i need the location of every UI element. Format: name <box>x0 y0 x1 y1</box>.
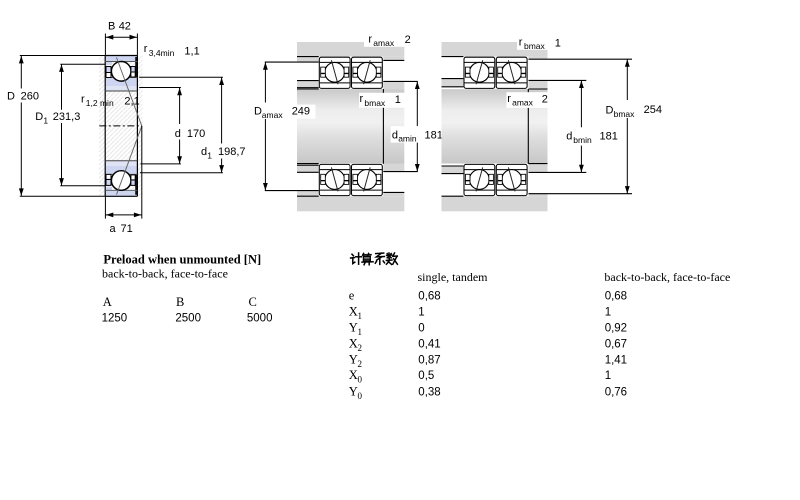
svg-text:r: r <box>360 93 364 105</box>
svg-text:71: 71 <box>121 223 133 235</box>
svg-text:0,76: 0,76 <box>605 386 627 398</box>
svg-text:d: d <box>201 146 207 158</box>
svg-text:1: 1 <box>418 307 424 319</box>
svg-text:C: C <box>249 295 257 309</box>
svg-text:0,68: 0,68 <box>418 291 440 303</box>
svg-text:B: B <box>108 21 115 33</box>
svg-text:e: e <box>349 289 355 303</box>
svg-text:bmin: bmin <box>573 135 592 145</box>
svg-text:254: 254 <box>644 104 662 116</box>
svg-text:1: 1 <box>207 150 212 160</box>
svg-text:D: D <box>606 105 614 117</box>
svg-text:bmax: bmax <box>364 98 386 108</box>
svg-text:Y: Y <box>349 352 358 366</box>
svg-text:back-to-back, face-to-face: back-to-back, face-to-face <box>604 270 730 284</box>
svg-text:1,1: 1,1 <box>184 45 199 57</box>
svg-text:1,41: 1,41 <box>605 354 627 366</box>
svg-text:2: 2 <box>358 343 363 353</box>
svg-text:2: 2 <box>542 93 548 105</box>
svg-text:181: 181 <box>600 131 618 143</box>
svg-text:amax: amax <box>512 98 534 108</box>
svg-text:a: a <box>110 223 117 235</box>
svg-text:0,68: 0,68 <box>605 291 627 303</box>
svg-text:B: B <box>176 295 184 309</box>
svg-text:1: 1 <box>605 370 611 382</box>
svg-text:5000: 5000 <box>247 312 273 324</box>
svg-text:42: 42 <box>119 21 131 33</box>
svg-text:Preload when unmounted [N]: Preload when unmounted [N] <box>103 252 261 266</box>
svg-text:1: 1 <box>605 307 611 319</box>
svg-text:r: r <box>507 93 511 105</box>
svg-text:0,38: 0,38 <box>418 386 440 398</box>
svg-text:0: 0 <box>418 323 424 335</box>
svg-text:amax: amax <box>373 38 395 48</box>
svg-text:Y: Y <box>349 321 358 335</box>
svg-text:bmax: bmax <box>524 41 546 51</box>
svg-text:198,7: 198,7 <box>218 146 246 158</box>
svg-text:r: r <box>144 43 148 55</box>
svg-text:d: d <box>175 128 181 140</box>
svg-text:181: 181 <box>425 129 443 141</box>
svg-text:X: X <box>349 305 358 319</box>
svg-text:bmax: bmax <box>614 109 636 119</box>
svg-text:2: 2 <box>358 359 363 369</box>
svg-text:1: 1 <box>358 311 363 321</box>
svg-text:0,41: 0,41 <box>418 338 440 350</box>
svg-text:d: d <box>392 129 398 141</box>
svg-text:0,92: 0,92 <box>605 323 627 335</box>
svg-text:d: d <box>566 131 572 143</box>
svg-text:amin: amin <box>398 134 417 144</box>
svg-text:1: 1 <box>395 94 401 106</box>
svg-text:2500: 2500 <box>175 312 201 324</box>
svg-text:A: A <box>103 295 112 309</box>
svg-text:3,4min: 3,4min <box>149 48 175 58</box>
svg-text:Y: Y <box>349 384 358 398</box>
svg-text:2,1: 2,1 <box>124 95 139 107</box>
svg-text:D: D <box>35 111 43 123</box>
svg-text:260: 260 <box>21 90 39 102</box>
svg-text:r: r <box>81 94 85 106</box>
svg-text:X: X <box>349 368 358 382</box>
svg-text:1,2 min: 1,2 min <box>86 98 114 108</box>
svg-text:249: 249 <box>292 106 310 118</box>
svg-text:single, tandem: single, tandem <box>418 270 489 284</box>
svg-text:D: D <box>254 106 262 118</box>
svg-text:1250: 1250 <box>102 312 128 324</box>
svg-text:1: 1 <box>358 327 363 337</box>
svg-text:D: D <box>7 90 15 102</box>
svg-text:170: 170 <box>187 128 205 140</box>
svg-text:0,5: 0,5 <box>418 370 434 382</box>
svg-text:0,67: 0,67 <box>605 338 627 350</box>
svg-text:0,87: 0,87 <box>418 354 440 366</box>
svg-text:0: 0 <box>358 375 363 385</box>
svg-text:r: r <box>368 33 372 45</box>
svg-text:231,3: 231,3 <box>53 111 81 123</box>
svg-text:amax: amax <box>262 110 284 120</box>
svg-text:r: r <box>519 37 523 49</box>
svg-text:X: X <box>349 336 358 350</box>
svg-text:1: 1 <box>43 115 48 125</box>
svg-text:1: 1 <box>555 37 561 49</box>
svg-text:back-to-back, face-to-face: back-to-back, face-to-face <box>102 266 228 280</box>
svg-text:2: 2 <box>405 34 411 46</box>
svg-text:0: 0 <box>358 391 363 401</box>
